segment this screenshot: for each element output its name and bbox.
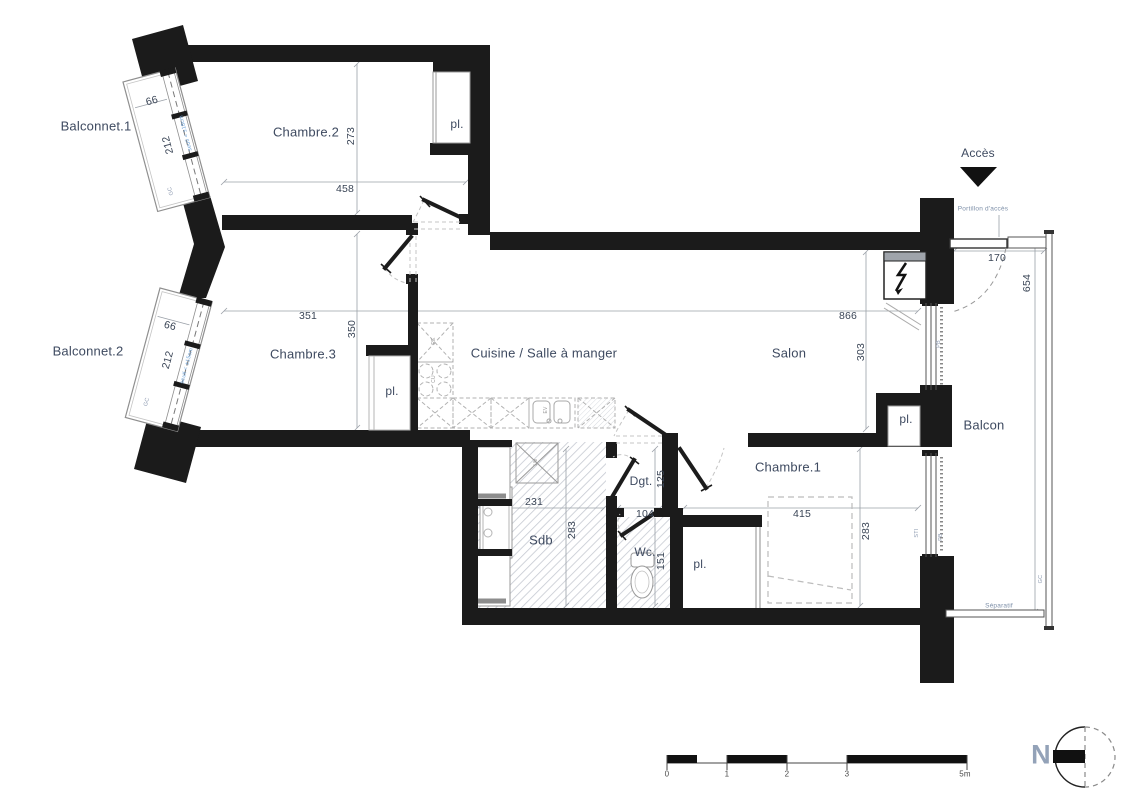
- kitchen-sink: [533, 401, 570, 423]
- entry-door-leaf: [884, 303, 921, 330]
- sti-chambre1-label: STI: [914, 528, 920, 537]
- floor-plan-drawing: [0, 0, 1137, 800]
- balcon-gc-label: GC: [1038, 575, 1044, 584]
- fridge-code-label: RE: [431, 337, 437, 344]
- dgt-width-dim: 104: [636, 508, 654, 520]
- pb-chambre1-label: PB: [938, 533, 944, 541]
- toilet: [631, 553, 654, 598]
- balcon-label: Balcon: [964, 418, 1005, 433]
- balcon-height-dim: 654: [1021, 274, 1033, 292]
- access-arrow-icon: [960, 167, 997, 187]
- scale-tick-2: 2: [785, 770, 790, 779]
- cuisine-label: Cuisine / Salle à manger: [471, 346, 617, 361]
- scale-tick-0: 0: [665, 770, 670, 779]
- wc-label: Wc.: [634, 545, 655, 559]
- kitchen-counter: [417, 323, 575, 428]
- sdb-width-dim: 231: [525, 496, 543, 508]
- acces-label: Accès: [961, 146, 995, 160]
- dgt-height-dim: 125: [655, 470, 667, 488]
- placard-chambre2-label: pl.: [450, 117, 463, 131]
- placard-wc-label: pl.: [693, 557, 706, 571]
- sdb-label: Sdb: [529, 533, 553, 548]
- separatif-label: Séparatif: [985, 603, 1013, 610]
- north-compass-icon: [1053, 727, 1115, 787]
- balcon-width-dim: 170: [988, 252, 1006, 264]
- scale-tick-5m: 5m: [959, 770, 971, 779]
- hob-code-label: CU: [431, 375, 437, 383]
- balconnet1-label: Balconnet.1: [61, 119, 132, 134]
- chambre2-height-dim: 273: [345, 127, 357, 145]
- scale-tick-3: 3: [845, 770, 850, 779]
- floor-plan-page: Balconnet.1 Balconnet.2 Chambre.2 Chambr…: [0, 0, 1137, 800]
- scale-bar: [667, 755, 967, 770]
- placard-chambre3-label: pl.: [385, 384, 398, 398]
- washer-code-label: LM: [533, 458, 539, 465]
- chambre2-width-dim: 458: [336, 183, 354, 195]
- chambre2-label: Chambre.2: [273, 125, 339, 140]
- placard-salon-label: pl.: [899, 412, 912, 426]
- wc-height-dim: 151: [655, 552, 667, 570]
- electrical-panel: [884, 252, 926, 299]
- chambre1-height-dim: 283: [860, 522, 872, 540]
- chambre1-label: Chambre.1: [755, 460, 821, 475]
- sink-code-label: EV: [543, 406, 549, 413]
- balconnet2-label: Balconnet.2: [53, 344, 124, 359]
- chambre3-height-dim: 350: [346, 320, 358, 338]
- north-letter: N: [1031, 740, 1051, 771]
- salon-width-dim: 866: [839, 310, 857, 322]
- chambre3-width-dim: 351: [299, 310, 317, 322]
- dgt-label: Dgt.: [630, 474, 653, 488]
- chambre3-label: Chambre.3: [270, 347, 336, 362]
- salon-label: Salon: [772, 346, 806, 361]
- portillon-label: Portillon d'accès: [958, 206, 1009, 213]
- kitchen-dishwasher: [578, 398, 615, 428]
- chambre1-width-dim: 415: [793, 508, 811, 520]
- scale-tick-1: 1: [725, 770, 730, 779]
- pb-salon-label: PB: [936, 340, 942, 348]
- sdb-height-dim: 283: [566, 521, 578, 539]
- salon-height-dim: 303: [855, 343, 867, 361]
